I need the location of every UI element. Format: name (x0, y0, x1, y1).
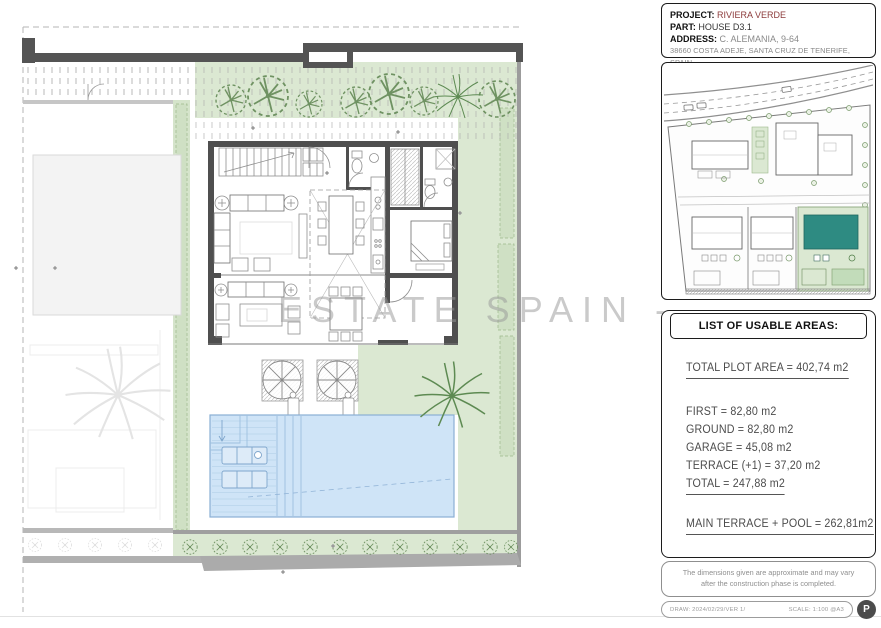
neighbour-plot (23, 84, 181, 552)
project-value: RIVIERA VERDE (717, 10, 786, 20)
site-bottom-hatch (686, 289, 870, 294)
area-total: TOTAL = 247,88 m2 (686, 475, 862, 495)
disclaimer-box: The dimensions given are approximate and… (661, 561, 876, 597)
project-line: PROJECT: RIVIERA VERDE (670, 9, 867, 21)
address-value: C. ALEMANIA, 9-64 (720, 34, 800, 44)
site-map-thumbnail (661, 62, 876, 300)
floor-plan-sheet (0, 0, 658, 623)
project-header-box: PROJECT: RIVIERA VERDE PART: HOUSE D3.1 … (661, 3, 876, 58)
usable-areas-title: LIST OF USABLE AREAS: (670, 313, 867, 339)
part-label: PART: (670, 22, 696, 32)
area-row: FIRST = 82,80 m2 (686, 403, 862, 421)
driveway-hatch (23, 63, 195, 100)
site-map-drawing (664, 65, 873, 297)
house-plan (208, 141, 458, 345)
pool-terrace (262, 360, 358, 418)
area-row: GROUND = 82,80 m2 (686, 421, 862, 439)
title-bar: DRAW: 2024/02/29/VER 1/ SCALE: 1:100 @A3 (661, 601, 853, 618)
part-value: HOUSE D3.1 (698, 22, 752, 32)
usable-areas-list: TOTAL PLOT AREA = 402,74 m2 FIRST = 82,8… (686, 359, 862, 535)
swimming-pool (210, 415, 454, 517)
area-row: TERRACE (+1) = 37,20 m2 (686, 457, 862, 475)
area-total-plot: TOTAL PLOT AREA = 402,74 m2 (686, 359, 862, 379)
usable-areas-box: LIST OF USABLE AREAS: TOTAL PLOT AREA = … (661, 310, 876, 558)
address-line: ADDRESS: C. ALEMANIA, 9-64 (670, 33, 867, 45)
address-label: ADDRESS: (670, 34, 717, 44)
site-highlighted-plot (798, 207, 868, 291)
project-label: PROJECT: (670, 10, 715, 20)
draw-date: DRAW: 2024/02/29/VER 1/ (670, 607, 745, 613)
scale-label: SCALE: 1:100 @A3 (789, 607, 844, 613)
area-row: GARAGE = 45,08 m2 (686, 439, 862, 457)
part-line: PART: HOUSE D3.1 (670, 21, 867, 33)
publisher-logo-icon: P (857, 600, 876, 619)
floor-plan-drawing (0, 0, 658, 623)
area-main-terrace-pool: MAIN TERRACE + POOL = 262,81m2 (686, 515, 862, 535)
disclaimer-text: The dimensions given are approximate and… (683, 568, 855, 588)
